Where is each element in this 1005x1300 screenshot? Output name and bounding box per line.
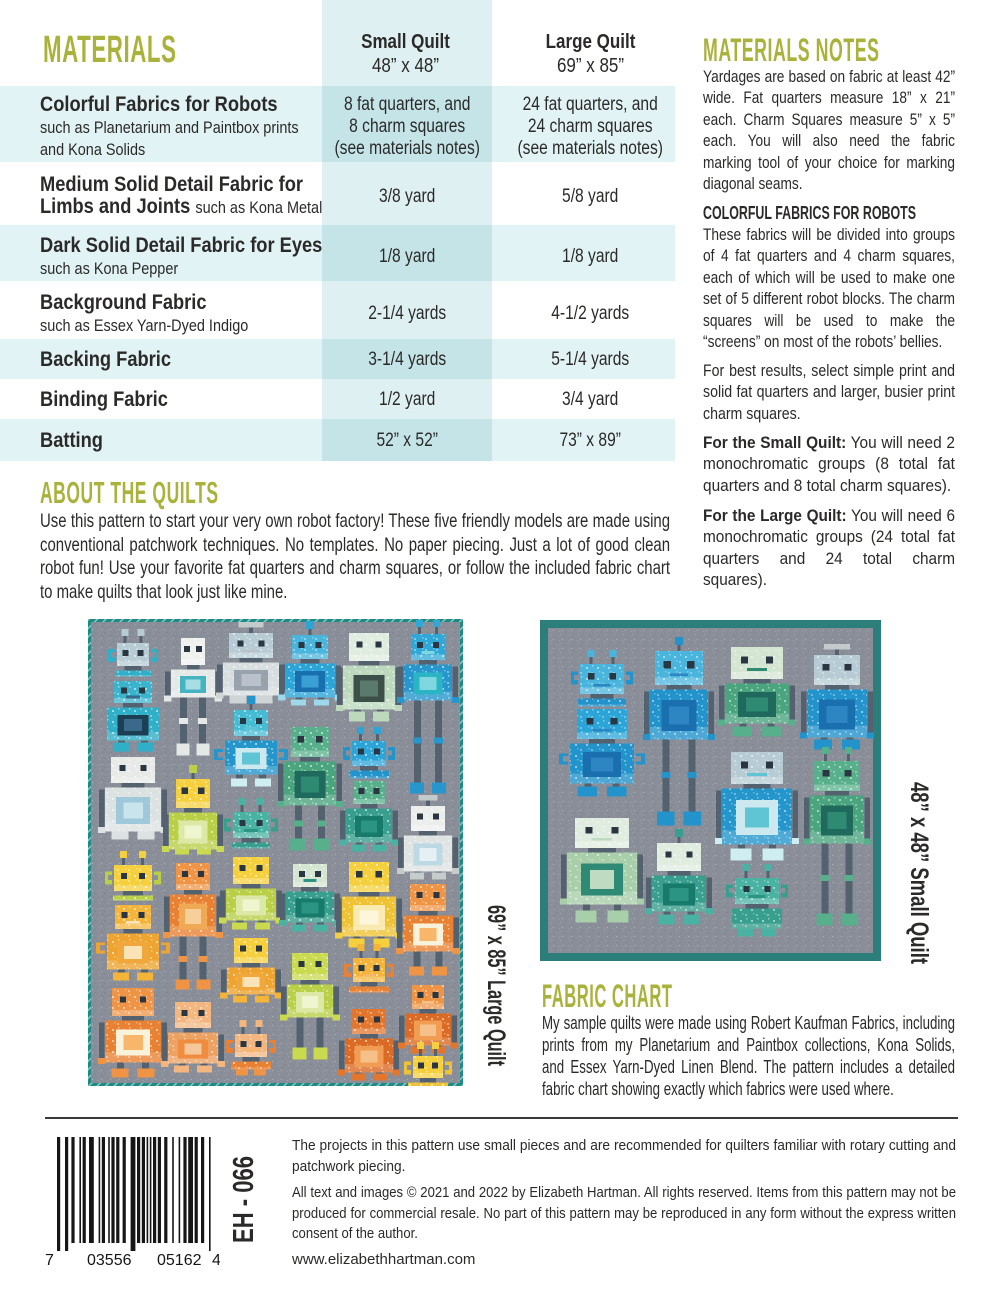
svg-text:05162: 05162 xyxy=(157,1252,202,1269)
svg-text:4: 4 xyxy=(212,1252,220,1269)
svg-text:03556: 03556 xyxy=(87,1252,132,1269)
svg-text:7: 7 xyxy=(45,1252,54,1269)
